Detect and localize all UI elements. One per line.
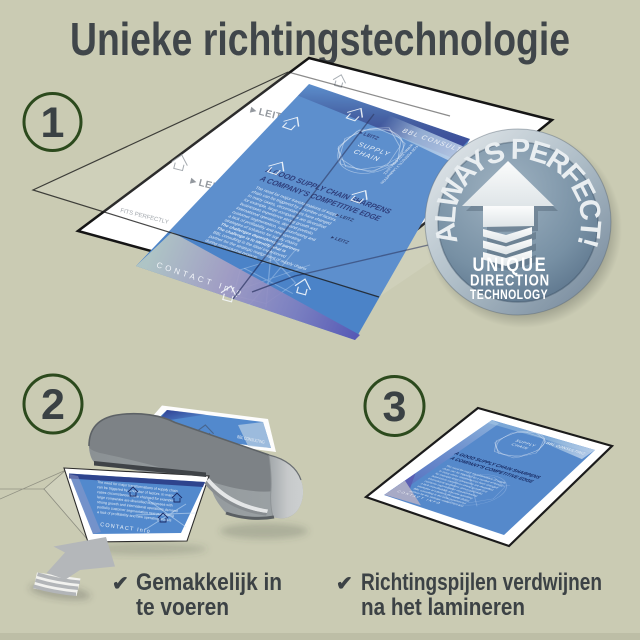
svg-text:te voeren: te voeren (136, 594, 229, 621)
svg-text:Unieke richtingstechnologie: Unieke richtingstechnologie (70, 13, 570, 65)
svg-text:✔: ✔ (112, 573, 129, 595)
svg-text:Gemakkelijk in: Gemakkelijk in (136, 569, 282, 596)
svg-text:TECHNOLOGY: TECHNOLOGY (470, 287, 548, 302)
svg-text:✔: ✔ (336, 573, 353, 595)
svg-text:na het lamineren: na het lamineren (361, 594, 525, 621)
svg-text:3: 3 (383, 383, 407, 431)
svg-text:Richtingspijlen verdwijnen: Richtingspijlen verdwijnen (361, 569, 602, 596)
svg-text:2: 2 (41, 381, 65, 429)
svg-text:1: 1 (41, 99, 65, 147)
